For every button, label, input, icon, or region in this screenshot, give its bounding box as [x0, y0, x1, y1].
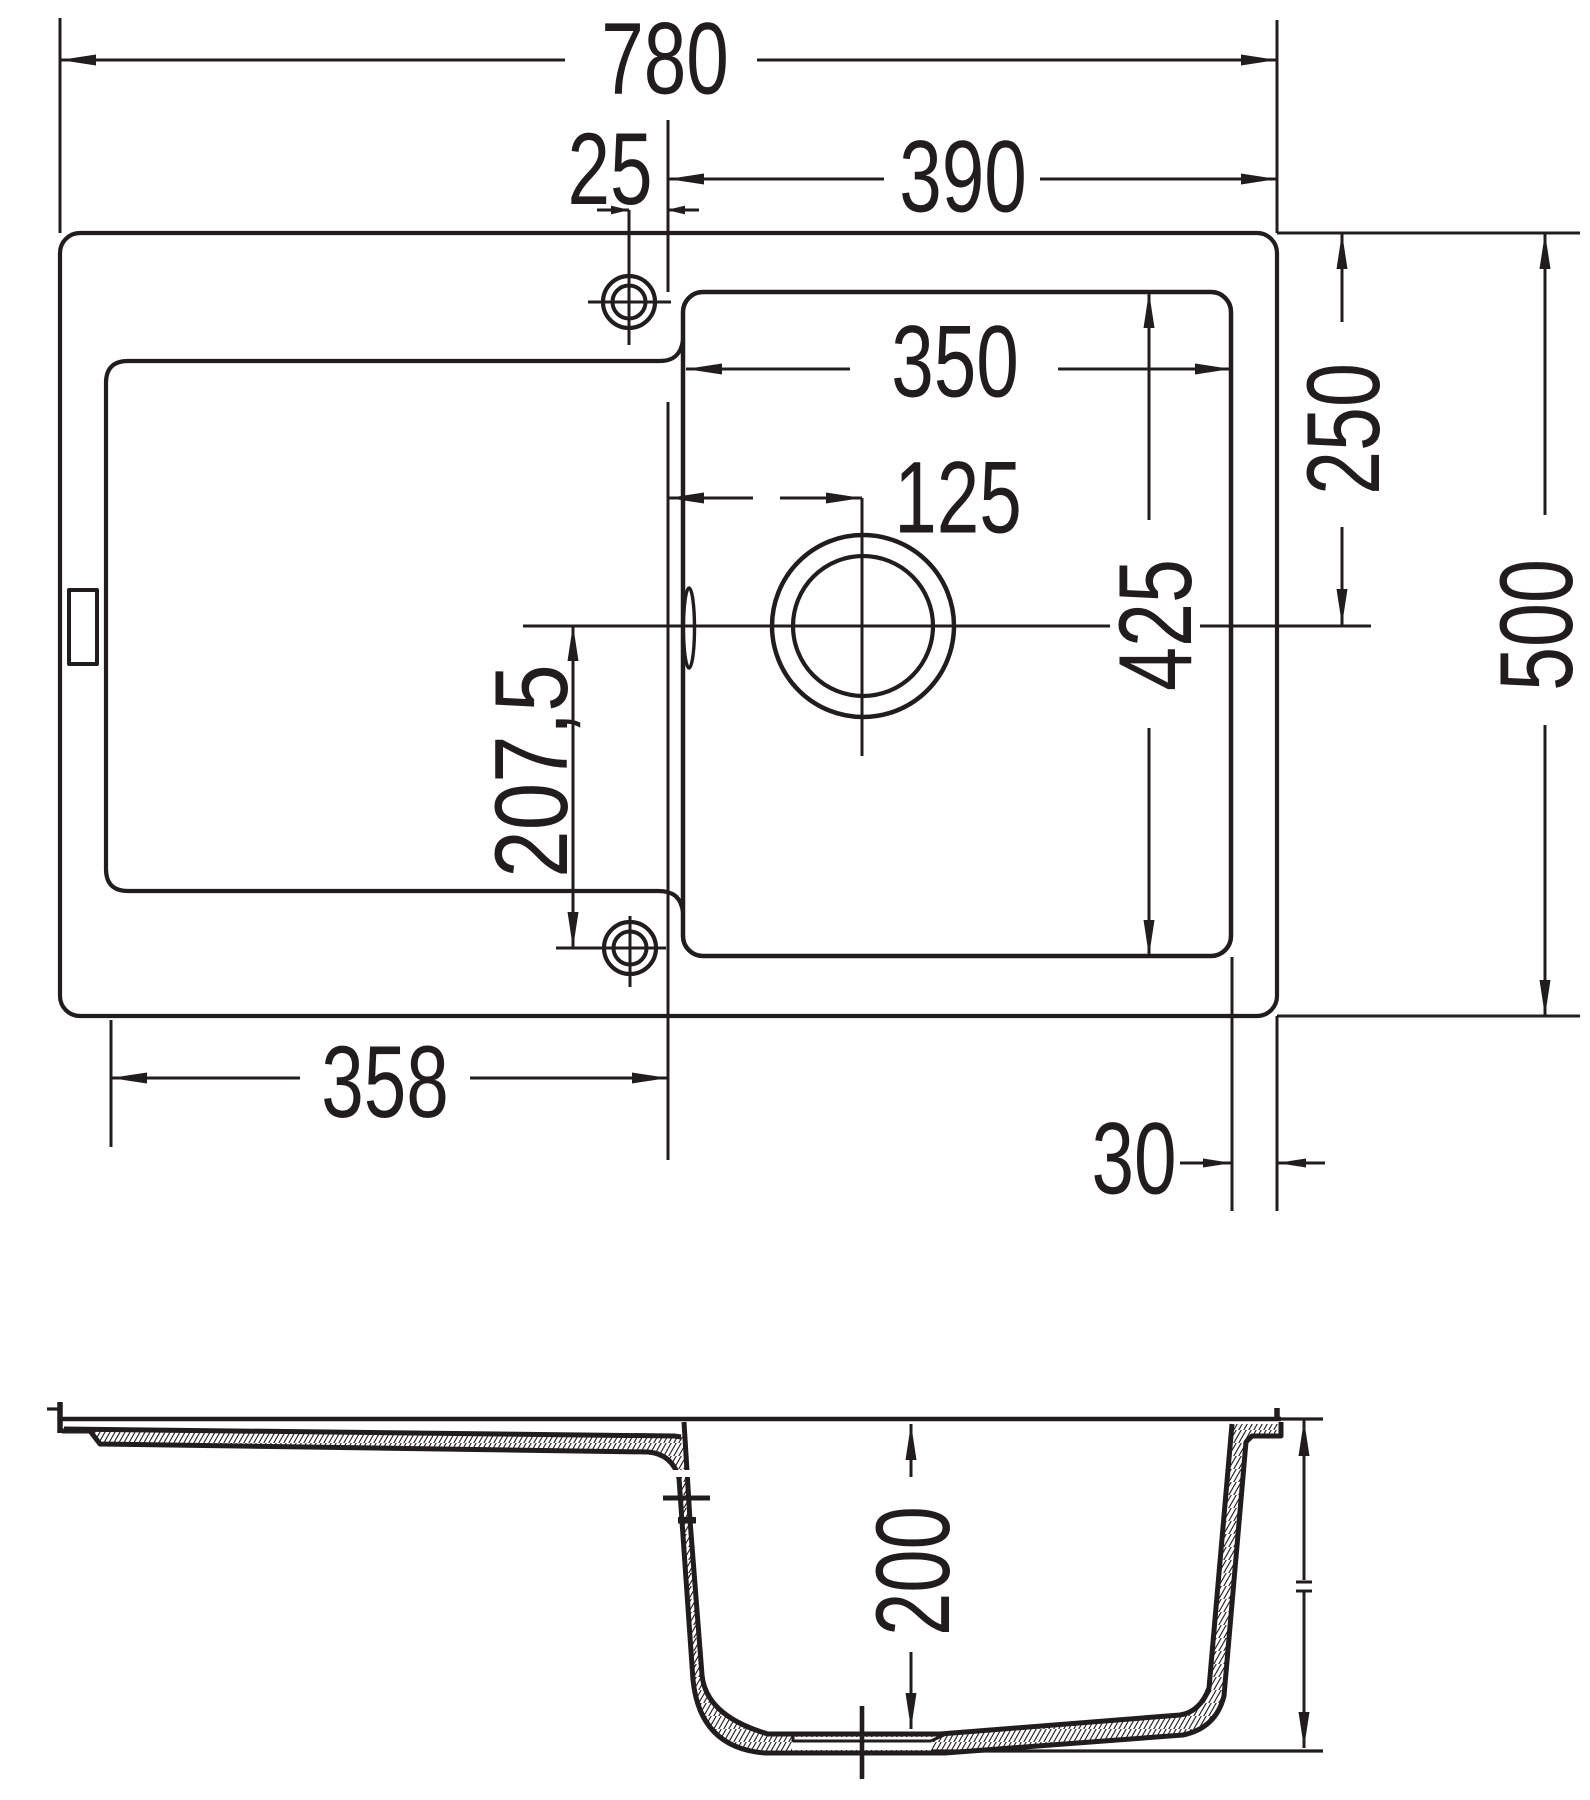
svg-text:250: 250	[1284, 363, 1401, 495]
svg-text:780: 780	[601, 2, 729, 116]
svg-text:207,5: 207,5	[474, 664, 590, 877]
svg-text:200: 200	[854, 1506, 972, 1636]
svg-text:30: 30	[1091, 1102, 1176, 1216]
svg-text:125: 125	[894, 441, 1022, 555]
svg-text:350: 350	[891, 305, 1019, 419]
svg-text:390: 390	[899, 120, 1027, 234]
svg-text:25: 25	[567, 112, 652, 226]
svg-text:500: 500	[1477, 559, 1590, 691]
svg-text:425: 425	[1096, 559, 1213, 691]
svg-text:358: 358	[321, 1025, 449, 1139]
